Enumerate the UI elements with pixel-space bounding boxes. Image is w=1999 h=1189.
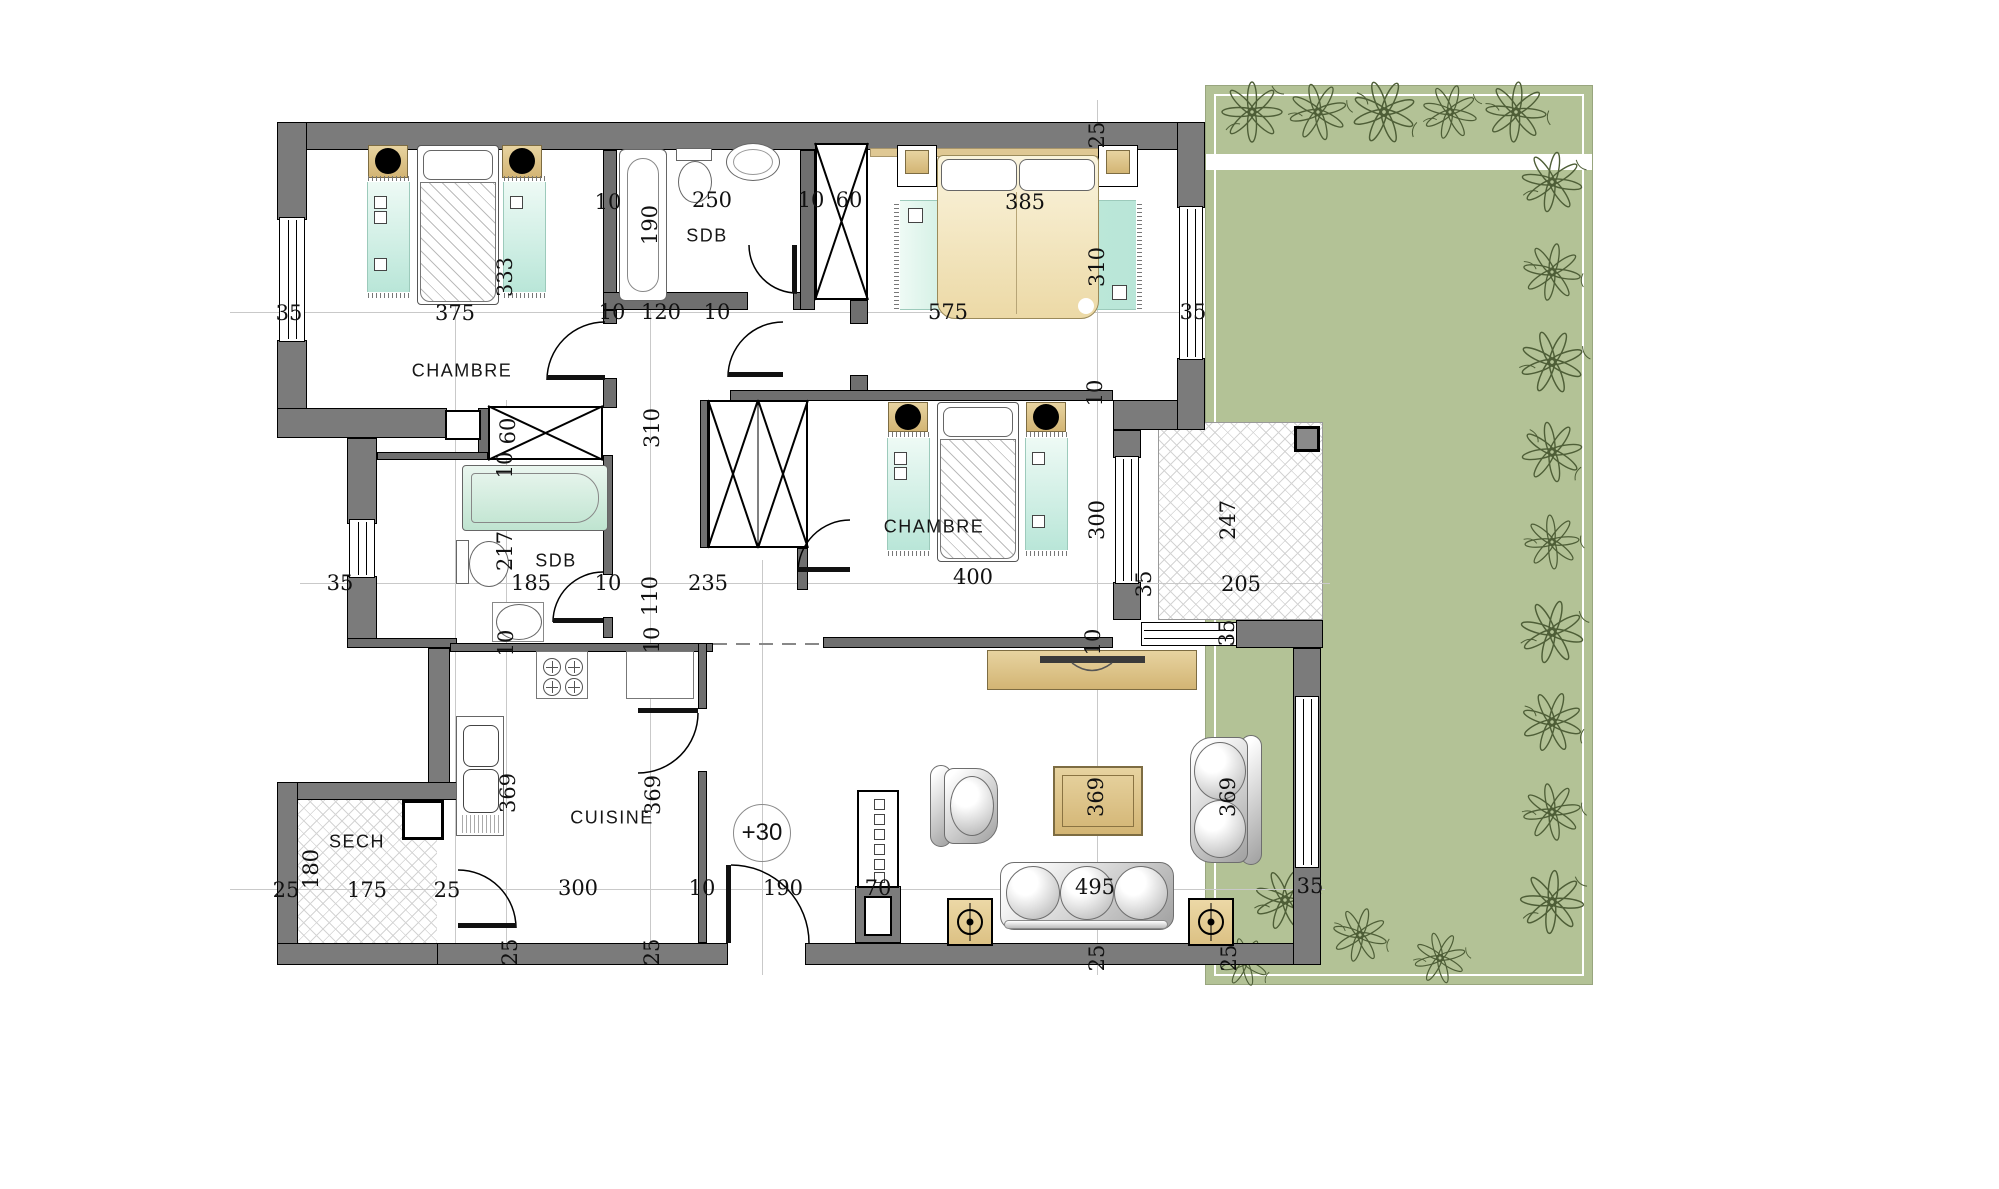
niche-hall	[445, 410, 481, 440]
lamp-icon	[895, 404, 921, 430]
window-master-right	[1179, 206, 1203, 360]
wall-master-right-upper	[1177, 122, 1205, 208]
dimension-label: 333	[493, 257, 517, 297]
wall-bottom-kitchen	[437, 943, 728, 965]
rug-deco	[1112, 285, 1127, 300]
plant-icon	[1220, 80, 1284, 144]
sofa-seat	[1114, 866, 1168, 920]
dimension-label: 10	[1081, 629, 1105, 656]
dimension-label: 217	[493, 531, 517, 571]
dimension-label: 190	[763, 876, 803, 900]
wall-sdb1-right	[800, 150, 815, 310]
dimension-label: 10	[494, 630, 518, 657]
dimension-label: 175	[347, 878, 387, 902]
dimension-label: 70	[865, 876, 892, 900]
dimension-label: 60	[496, 418, 520, 445]
tv	[1040, 656, 1145, 663]
sofa-base	[1004, 920, 1168, 929]
wall-chambre1-sdb1	[603, 150, 617, 310]
speaker	[947, 898, 993, 946]
pillow	[423, 150, 493, 180]
plant-icon	[1516, 866, 1589, 939]
pillow	[941, 159, 1017, 191]
rug-deco	[894, 452, 907, 465]
blanket	[940, 439, 1016, 559]
dimension-label: 25	[273, 878, 300, 902]
dimension-label: 310	[1085, 247, 1109, 287]
wall-sdb2-top	[377, 452, 488, 460]
wall-sech-top	[277, 782, 458, 800]
pillow	[943, 407, 1013, 437]
terrace-column	[1294, 426, 1320, 452]
wall-kitchen-right-lower	[698, 771, 707, 943]
dimension-label: 10	[595, 571, 622, 595]
dimension-label: 25	[1085, 945, 1109, 972]
room-label-sdb-1: SDB	[686, 226, 728, 247]
wall-hall-left-stub2	[603, 378, 617, 408]
rug-deco	[374, 211, 387, 224]
wall-left-upper	[277, 122, 307, 220]
sofa-seat	[1006, 866, 1060, 920]
window-living-right	[1295, 696, 1319, 868]
wall-living-top	[823, 637, 1113, 648]
rug-deco	[908, 208, 923, 223]
dimension-label: 10	[595, 190, 622, 214]
dimension-label: 375	[435, 301, 475, 325]
plant-icon	[1515, 415, 1589, 489]
dimension-label: 185	[511, 571, 551, 595]
dimension-label: 575	[928, 300, 968, 324]
rug-deco	[1032, 515, 1045, 528]
sech-duct-box	[402, 800, 444, 840]
room-label-sech: SECH	[329, 832, 385, 853]
kitchen-counter	[626, 651, 694, 699]
wardrobe-chambre2	[708, 400, 808, 548]
dimension-label: 300	[558, 876, 598, 900]
dimension-label: 120	[641, 300, 681, 324]
room-label-sdb-2: SDB	[535, 551, 577, 572]
floor-plan: 3537533310190250106038531025575351012010…	[0, 0, 1999, 1189]
speaker	[1188, 898, 1234, 946]
dimension-label: 369	[1216, 777, 1240, 817]
stove	[536, 651, 588, 699]
wall-sech-left	[277, 782, 298, 965]
armchair-seat	[950, 776, 994, 836]
dimension-label: 35	[1180, 300, 1207, 324]
rug-deco	[374, 196, 387, 209]
gridline	[762, 560, 763, 975]
dimension-label: 60	[836, 188, 863, 212]
room-label-cuisine: CUISINE	[570, 808, 654, 829]
dimension-label: 190	[638, 205, 662, 245]
wall-left-lower1	[347, 438, 377, 524]
dimension-label: 110	[638, 576, 662, 616]
lamp-icon	[509, 148, 535, 174]
plant-icon	[1515, 145, 1589, 219]
toilet-tank	[456, 540, 469, 584]
wall-chambre2-left-stub	[797, 548, 808, 590]
dimension-label: 400	[953, 565, 993, 589]
dimension-label: 35	[1132, 571, 1156, 598]
shelf-unit	[857, 790, 899, 888]
dimension-label: 10	[640, 627, 664, 654]
wall-bottom-living	[805, 943, 1321, 965]
dimension-label: 385	[1005, 190, 1045, 214]
bathtub-green	[462, 465, 608, 531]
lamp-icon	[905, 150, 929, 174]
dimension-label: 495	[1075, 875, 1115, 899]
wall-kitchen-left	[428, 648, 450, 784]
lamp-icon	[1033, 404, 1059, 430]
dimension-label: 247	[1216, 500, 1240, 540]
dimension-label: 35	[1297, 874, 1324, 898]
rug-deco	[374, 258, 387, 271]
dimension-label: 369	[1084, 777, 1108, 817]
wall-sech-bottom	[277, 943, 458, 965]
dimension-label: 300	[1085, 500, 1109, 540]
room-label-chambre-1: CHAMBRE	[412, 361, 513, 382]
bed-deco	[1078, 298, 1094, 314]
dimension-label: 310	[640, 408, 664, 448]
dimension-label: 205	[1221, 572, 1261, 596]
dimension-label: 25	[498, 939, 522, 966]
dimension-label: 10	[599, 300, 626, 324]
dimension-label: 25	[1217, 945, 1241, 972]
window-sdb2-left	[349, 519, 375, 578]
dimension-label: 35	[276, 301, 303, 325]
dimension-label: 25	[1085, 122, 1109, 149]
dimension-label: 25	[640, 939, 664, 966]
dimension-label: 10	[493, 452, 517, 479]
wardrobe-master	[815, 143, 868, 300]
dimension-label: 35	[1215, 620, 1239, 647]
wall-kitchen-right-upper	[698, 643, 707, 709]
blanket	[420, 182, 496, 302]
dimension-label: 180	[299, 849, 323, 889]
dimension-label: 35	[327, 571, 354, 595]
level-marker: +30	[733, 804, 791, 862]
wall-hall-right	[700, 400, 708, 548]
rug-deco	[894, 467, 907, 480]
entry-pillar-niche	[864, 896, 892, 936]
dimension-label: 250	[692, 188, 732, 212]
wall-chambre2-right-upper	[1113, 430, 1141, 458]
window-chambre2-right	[1115, 456, 1139, 584]
dimension-label: 235	[688, 571, 728, 595]
wall-sdb2-right-stub	[603, 617, 613, 638]
toilet-tank	[676, 148, 712, 161]
room-label-chambre-2: CHAMBRE	[884, 517, 985, 538]
dimension-label: 10	[798, 188, 825, 212]
rug-deco	[1032, 452, 1045, 465]
wall-chambre1-bottom	[277, 408, 447, 438]
dimension-label: 369	[496, 773, 520, 813]
rug-deco	[510, 196, 523, 209]
dimension-label: 10	[689, 876, 716, 900]
lamp-icon	[1106, 150, 1130, 174]
wall-terrace-bottom	[1236, 620, 1323, 648]
dimension-label: 25	[434, 878, 461, 902]
dimension-label: 10	[704, 300, 731, 324]
dimension-label: 10	[1083, 380, 1107, 407]
lamp-icon	[375, 148, 401, 174]
wall-master-right-lower	[1177, 358, 1205, 430]
wall-sdb2-bottom	[347, 638, 457, 648]
pillow	[1019, 159, 1095, 191]
wall-master-left-stub1	[850, 300, 868, 324]
sink	[726, 143, 780, 181]
